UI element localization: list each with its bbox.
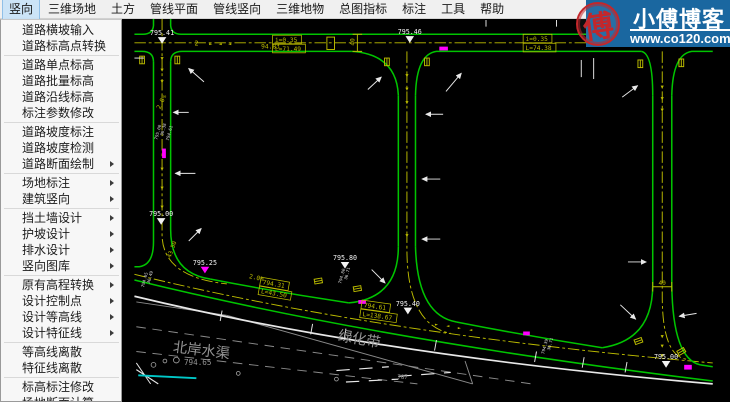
submenu-arrow-icon <box>110 215 114 221</box>
svg-text:▼: ▼ <box>160 56 164 62</box>
menu-item-道路沿线标高[interactable]: 道路沿线标高 <box>1 89 121 105</box>
svg-text:787: 787 <box>397 375 407 381</box>
svg-text:2: 2 <box>194 40 198 48</box>
menubar-item-土方[interactable]: 土方 <box>104 0 142 20</box>
menu-item-原有高程转换[interactable]: 原有高程转换 <box>1 277 121 293</box>
svg-text:▼: ▼ <box>661 96 665 102</box>
submenu-arrow-icon <box>110 196 114 202</box>
svg-text:►: ► <box>435 322 439 328</box>
menu-item-道路坡度检测[interactable]: 道路坡度检测 <box>1 140 121 156</box>
menu-item-设计特征线[interactable]: 设计特征线 <box>1 325 121 341</box>
menu-item-道路标高点转换[interactable]: 道路标高点转换 <box>1 38 121 54</box>
menubar-item-总图指标[interactable]: 总图指标 <box>332 0 394 20</box>
menu-item-道路单点标高[interactable]: 道路单点标高 <box>1 57 121 73</box>
svg-text:L=74.38: L=74.38 <box>526 45 552 52</box>
vertical-design-menu: 道路横坡输入道路标高点转换道路单点标高道路批量标高道路沿线标高标注参数修改道路坡… <box>0 19 122 402</box>
menubar-item-标注[interactable]: 标注 <box>395 0 433 20</box>
watermark: 傅 小傅博客 www.co120.com <box>586 0 730 47</box>
svg-text:40: 40 <box>658 280 666 287</box>
svg-text:i=0.35: i=0.35 <box>526 36 549 43</box>
place-name-labels: 绿化带北岸水渠794.65787 <box>172 327 408 381</box>
menu-separator <box>4 208 119 209</box>
menu-item-设计控制点[interactable]: 设计控制点 <box>1 293 121 309</box>
road-edges <box>134 19 712 381</box>
submenu-arrow-icon <box>110 180 114 186</box>
menu-item-道路坡度标注[interactable]: 道路坡度标注 <box>1 124 121 140</box>
seal-icon: 傅 <box>576 2 620 46</box>
centerlines <box>134 19 712 363</box>
svg-text:▼: ▼ <box>661 107 665 113</box>
svg-text:L=71.49: L=71.49 <box>275 46 301 53</box>
menu-item-建筑竖向[interactable]: 建筑竖向 <box>1 191 121 207</box>
svg-text:►: ► <box>458 326 462 332</box>
submenu-arrow-icon <box>110 282 114 288</box>
submenu-arrow-icon <box>110 161 114 167</box>
menu-item-场地标注[interactable]: 场地标注 <box>1 175 121 191</box>
svg-text:40: 40 <box>350 38 357 46</box>
menu-item-道路断面绘制[interactable]: 道路断面绘制 <box>1 156 121 172</box>
svg-text:►: ► <box>209 42 213 48</box>
svg-text:▼: ▼ <box>160 79 164 85</box>
svg-text:795.46: 795.46 <box>398 28 422 36</box>
menu-item-道路横坡输入[interactable]: 道路横坡输入 <box>1 22 121 38</box>
svg-text:i=0.35: i=0.35 <box>275 37 298 44</box>
menu-separator <box>4 173 119 174</box>
submenu-arrow-icon <box>110 298 114 304</box>
svg-text:795.25: 795.25 <box>193 259 217 267</box>
gate-symbols <box>140 56 686 355</box>
menu-item-排水设计[interactable]: 排水设计 <box>1 242 121 258</box>
svg-text:794.65: 794.65 <box>184 358 212 367</box>
svg-text:▼: ▼ <box>405 233 409 239</box>
menu-item-等高线离散[interactable]: 等高线离散 <box>1 344 121 360</box>
svg-text:795.41: 795.41 <box>150 29 174 37</box>
svg-text:795.40: 795.40 <box>396 300 420 308</box>
menu-item-道路批量标高[interactable]: 道路批量标高 <box>1 73 121 89</box>
watermark-url: www.co120.com <box>630 29 730 46</box>
menu-item-标注参数修改[interactable]: 标注参数修改 <box>1 105 121 121</box>
centerline-markers: ▼▼▼▼▼▼▼▼▼▼▼▼▼▼▼▼►◄◄►◄►◄ <box>160 42 664 360</box>
svg-text:795.80: 795.80 <box>333 254 357 262</box>
menu-item-竖向图库[interactable]: 竖向图库 <box>1 258 121 274</box>
menu-item-标高标注修改[interactable]: 标高标注修改 <box>1 379 121 395</box>
flow-arrows <box>174 69 697 320</box>
svg-text:▼: ▼ <box>661 334 665 340</box>
menubar-item-三维场地[interactable]: 三维场地 <box>41 0 103 20</box>
menu-separator <box>4 377 119 378</box>
menubar-item-工具[interactable]: 工具 <box>434 0 472 20</box>
svg-text:795.00: 795.00 <box>654 353 678 361</box>
menubar-item-管线竖向[interactable]: 管线竖向 <box>206 0 268 20</box>
svg-text:◄: ◄ <box>446 324 450 330</box>
width-dimensions <box>327 34 672 291</box>
svg-text:▼: ▼ <box>405 100 409 106</box>
submenu-arrow-icon <box>110 314 114 320</box>
svg-text:◄: ◄ <box>469 327 473 333</box>
menu-separator <box>4 122 119 123</box>
menubar-item-竖向[interactable]: 竖向 <box>2 0 40 20</box>
menubar-item-帮助[interactable]: 帮助 <box>473 0 511 20</box>
svg-text:▼: ▼ <box>160 67 164 73</box>
svg-text:▼: ▼ <box>661 85 665 91</box>
svg-text:▼: ▼ <box>405 73 409 79</box>
svg-text:2.0%: 2.0% <box>156 94 169 111</box>
submenu-arrow-icon <box>110 247 114 253</box>
menu-separator <box>4 55 119 56</box>
svg-text:795.00: 795.00 <box>149 210 173 218</box>
menu-item-场地断面计算[interactable]: 场地断面计算 <box>1 395 121 402</box>
submenu-arrow-icon <box>110 231 114 237</box>
svg-text:▼: ▼ <box>160 166 164 172</box>
menu-item-设计等高线[interactable]: 设计等高线 <box>1 309 121 325</box>
magenta-marks <box>162 47 692 370</box>
menu-item-挡土墙设计[interactable]: 挡土墙设计 <box>1 210 121 226</box>
menubar-item-管线平面[interactable]: 管线平面 <box>143 0 205 20</box>
svg-text:▼: ▼ <box>160 186 164 192</box>
menu-item-护坡设计[interactable]: 护坡设计 <box>1 226 121 242</box>
submenu-arrow-icon <box>110 263 114 269</box>
station-micro-labels: 795.0036.38794.61794.8036.71794.3936.717… <box>140 122 555 355</box>
submenu-arrow-icon <box>110 330 114 336</box>
menu-separator <box>4 342 119 343</box>
slope-labels: 294.832.0%2.0%43.504040 <box>156 38 667 287</box>
svg-text:▼: ▼ <box>405 86 409 92</box>
menu-separator <box>4 275 119 276</box>
svg-text:▼: ▼ <box>661 344 665 350</box>
menubar-item-三维地物[interactable]: 三维地物 <box>269 0 331 20</box>
menu-item-特征线离散[interactable]: 特征线离散 <box>1 360 121 376</box>
svg-text:43.50: 43.50 <box>167 240 179 259</box>
